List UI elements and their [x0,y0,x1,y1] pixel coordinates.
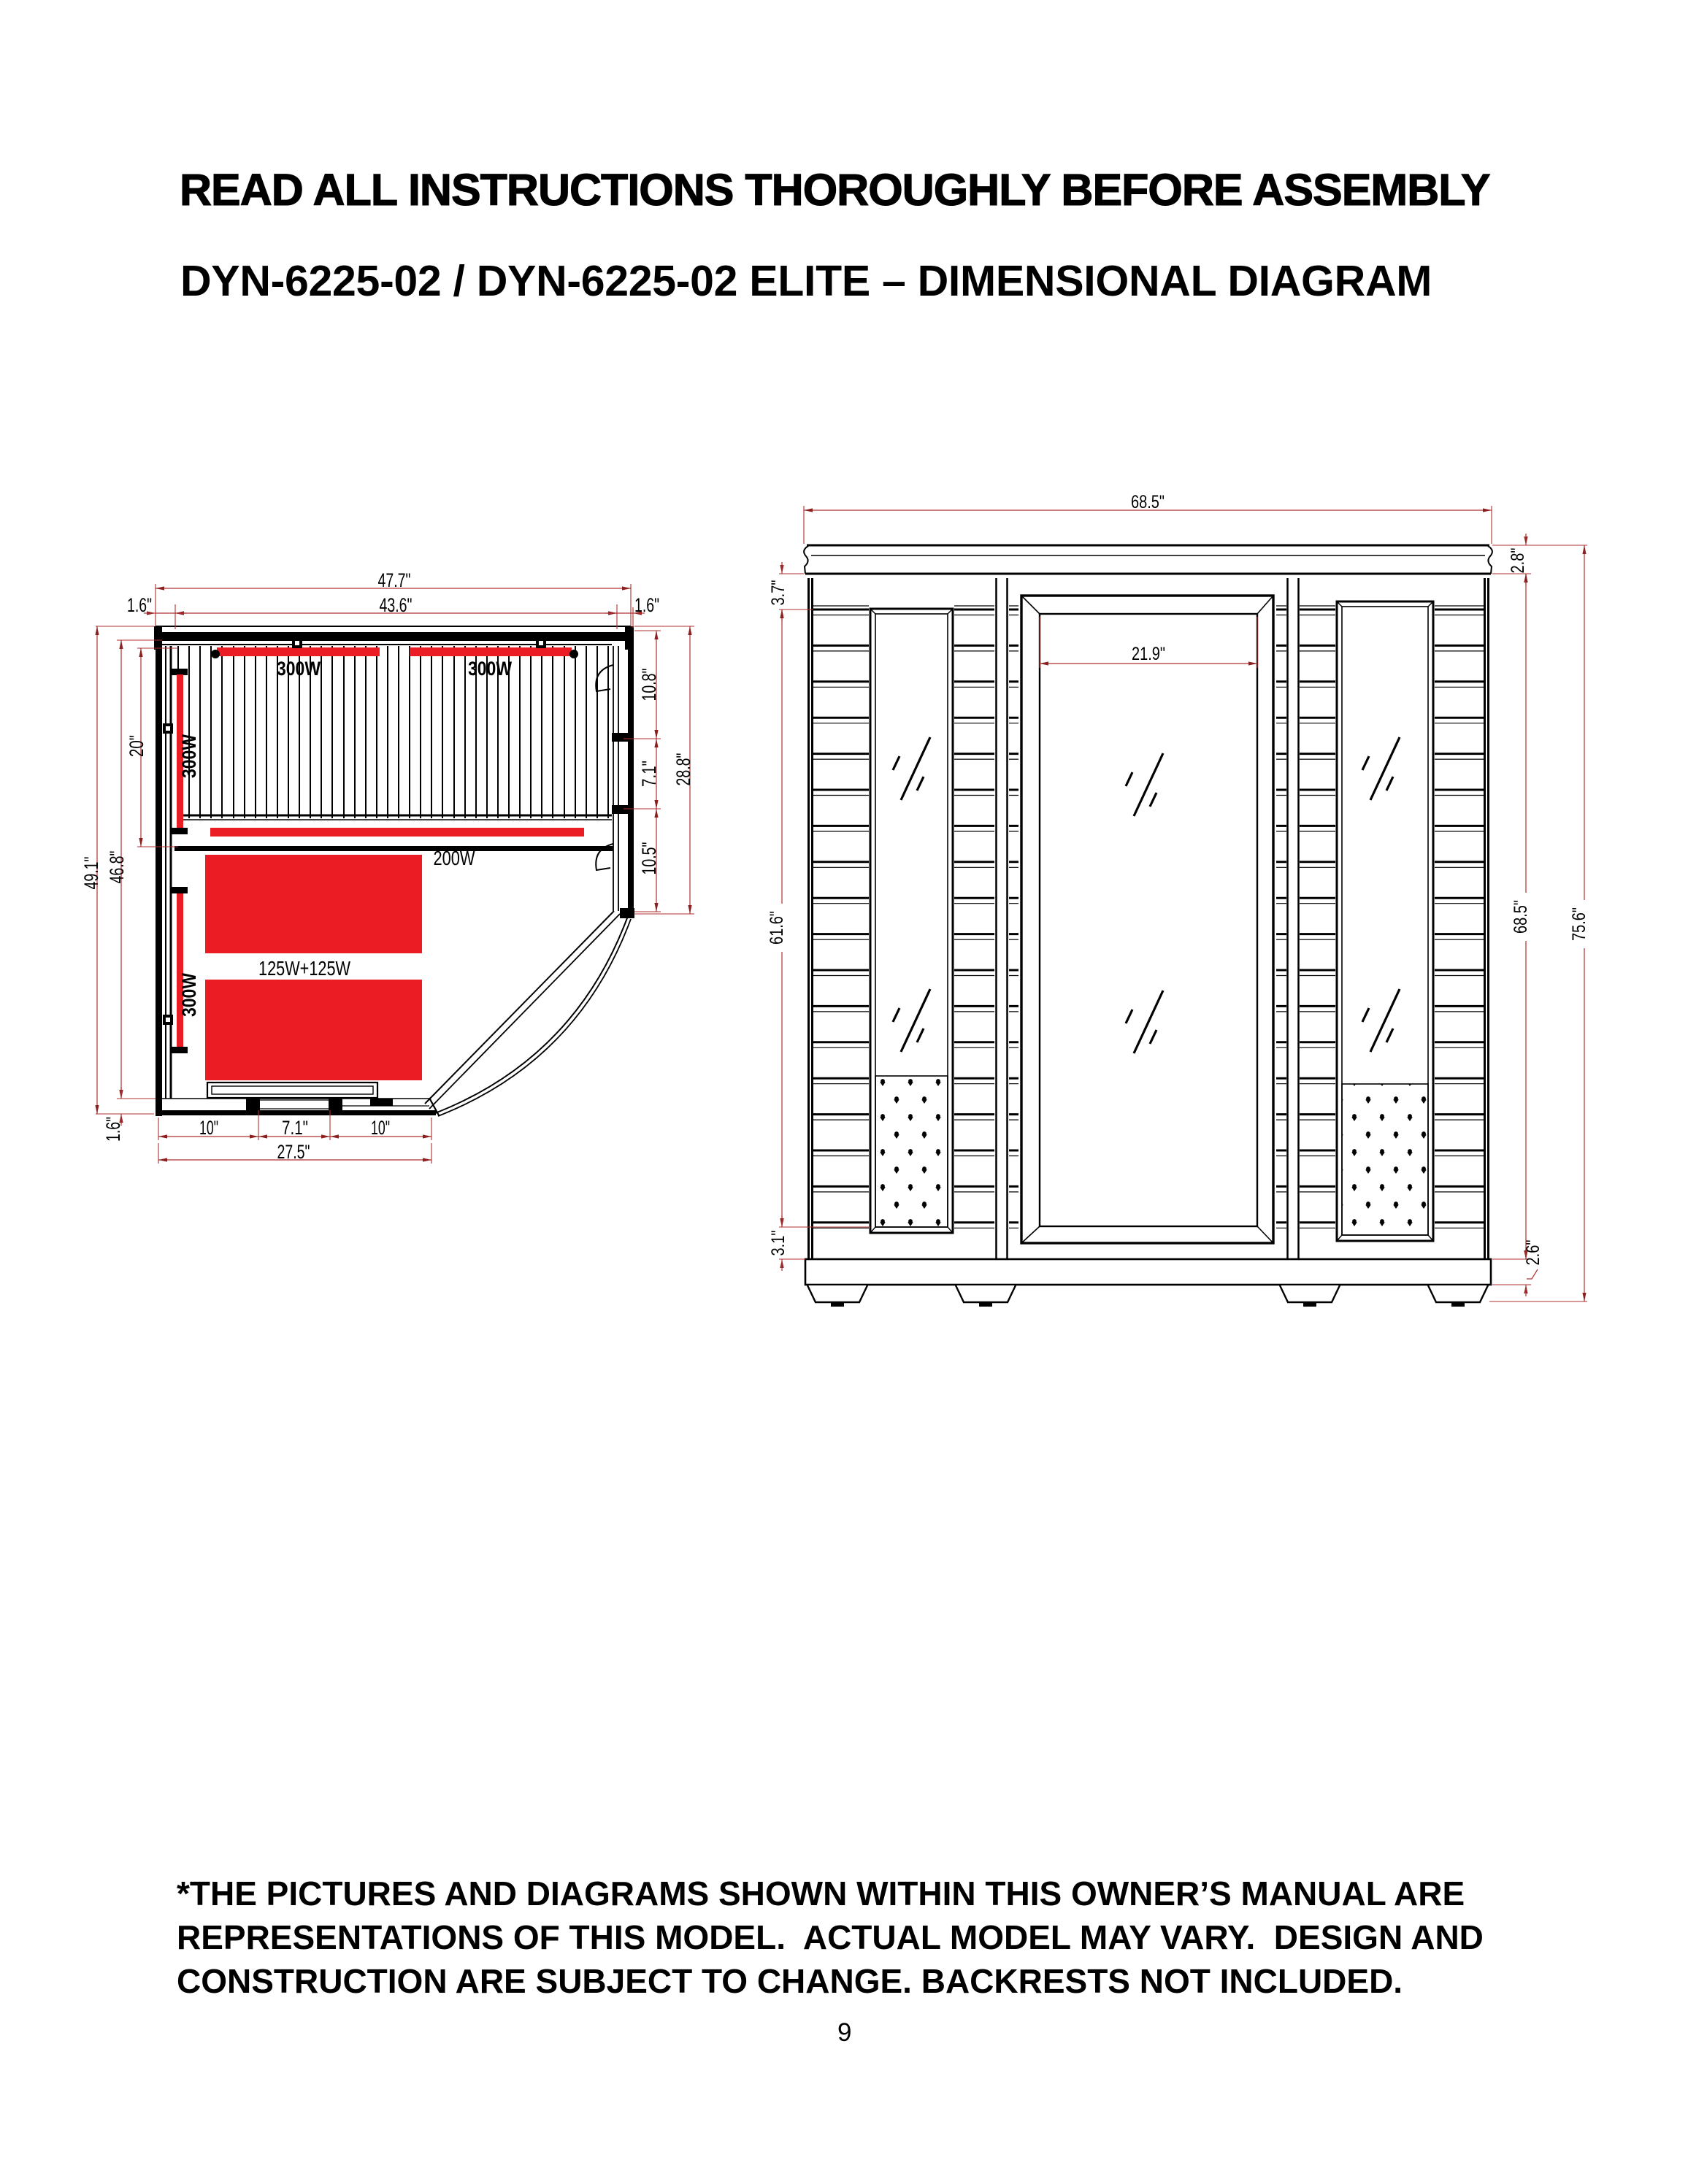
svg-text:28.8": 28.8" [672,753,694,786]
svg-text:49.1": 49.1" [80,857,102,890]
svg-text:27.5": 27.5" [277,1141,310,1163]
svg-text:300W: 300W [468,658,512,680]
svg-text:68.5": 68.5" [1511,900,1531,934]
svg-text:7.1": 7.1" [282,1117,308,1139]
svg-text:7.1": 7.1" [638,761,660,787]
svg-text:1.6": 1.6" [102,1117,124,1142]
svg-text:10": 10" [371,1117,390,1139]
svg-text:21.9": 21.9" [1132,644,1165,664]
svg-text:10.5": 10.5" [638,842,660,875]
svg-text:1.6": 1.6" [634,594,659,616]
svg-text:300W: 300W [178,734,200,778]
svg-text:75.6": 75.6" [1569,907,1589,941]
svg-text:125W+125W: 125W+125W [258,957,350,980]
svg-text:10": 10" [199,1117,218,1139]
svg-text:43.6": 43.6" [380,594,413,616]
svg-text:200W: 200W [434,847,475,869]
svg-text:3.7": 3.7" [768,580,789,606]
svg-text:2.6": 2.6" [1523,1240,1543,1266]
svg-text:46.8": 46.8" [106,851,128,884]
svg-text:300W: 300W [277,658,321,680]
svg-text:300W: 300W [178,973,200,1017]
svg-text:10.8": 10.8" [638,669,660,701]
svg-text:2.8": 2.8" [1508,548,1528,574]
svg-text:20": 20" [126,735,147,757]
svg-text:47.7": 47.7" [378,569,411,591]
svg-text:1.6": 1.6" [127,594,152,616]
svg-text:61.6": 61.6" [767,911,787,945]
svg-text:3.1": 3.1" [768,1231,789,1256]
svg-text:68.5": 68.5" [1131,492,1165,512]
